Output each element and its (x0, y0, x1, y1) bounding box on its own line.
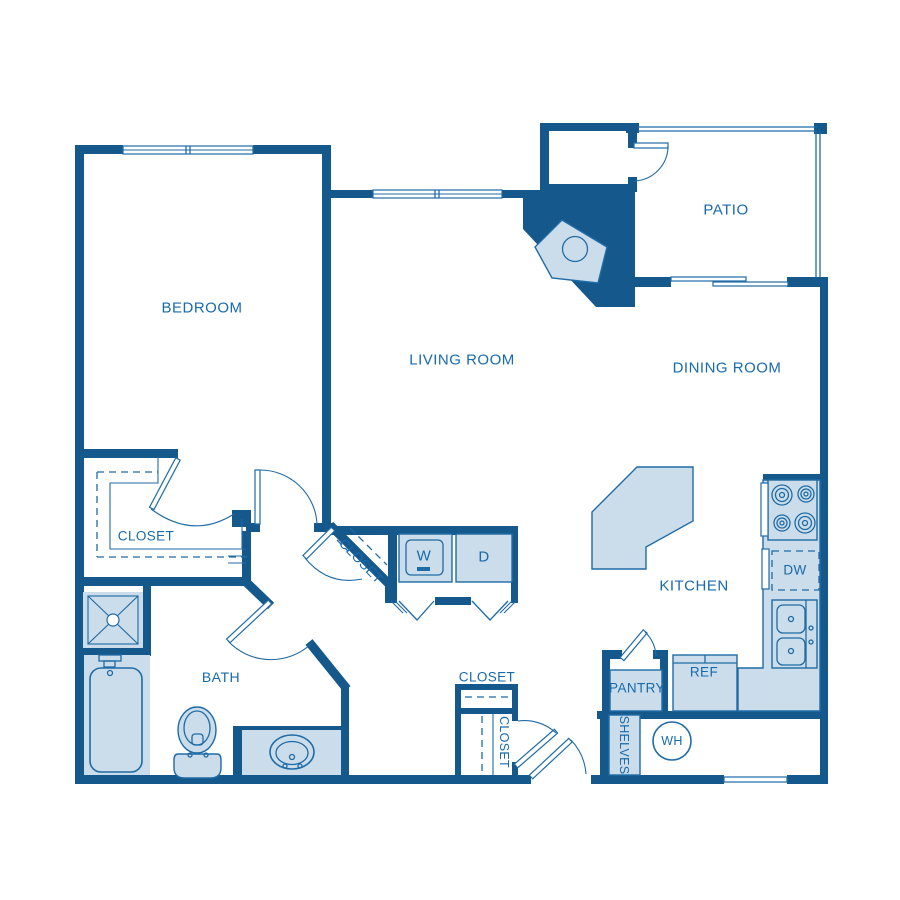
bedroom-closet-label: CLOSET (118, 529, 174, 544)
refrigerator-label: REF (690, 665, 718, 680)
shelves-label: SHELVES (617, 716, 631, 775)
fireplace (523, 190, 635, 307)
entry-closet-interior (482, 714, 493, 775)
pantry-door (620, 630, 656, 661)
patio-storage-door (634, 143, 668, 181)
kitchen-peninsula-counter (592, 467, 693, 569)
bath-label: BATH (202, 669, 240, 685)
floorplan-drawing (0, 0, 900, 900)
bedroom-label: BEDROOM (161, 300, 242, 317)
vanity (242, 730, 341, 775)
shower (83, 592, 143, 648)
toilet (174, 707, 221, 778)
living-room-window (373, 190, 502, 198)
refrigerator (673, 655, 737, 711)
living-room-label: LIVING ROOM (409, 352, 515, 369)
kitchen-sink (772, 600, 817, 668)
washer-label: W (417, 548, 432, 565)
water-heater-vent (724, 777, 787, 782)
hall-closet-label: CLOSET (459, 670, 515, 685)
bath-door (227, 600, 311, 659)
dishwasher-label: DW (783, 563, 806, 578)
patio-sliding-door (671, 277, 788, 286)
patio-label: PATIO (703, 202, 748, 219)
bedroom-door (255, 470, 317, 524)
stove (761, 480, 817, 540)
bedroom-window (123, 146, 253, 154)
kitchen-label: KITCHEN (659, 578, 728, 595)
bedroom-closet-door (150, 458, 234, 526)
dining-room-label: DINING ROOM (673, 360, 782, 377)
entry-closet-label: CLOSET (497, 716, 511, 768)
bathtub (84, 655, 150, 775)
floorplan: BEDROOM LIVING ROOM DINING ROOM PATIO KI… (0, 0, 900, 900)
dryer-label: D (478, 549, 489, 566)
pantry-label: PANTRY (609, 681, 665, 696)
water-heater-label: WH (661, 734, 682, 748)
